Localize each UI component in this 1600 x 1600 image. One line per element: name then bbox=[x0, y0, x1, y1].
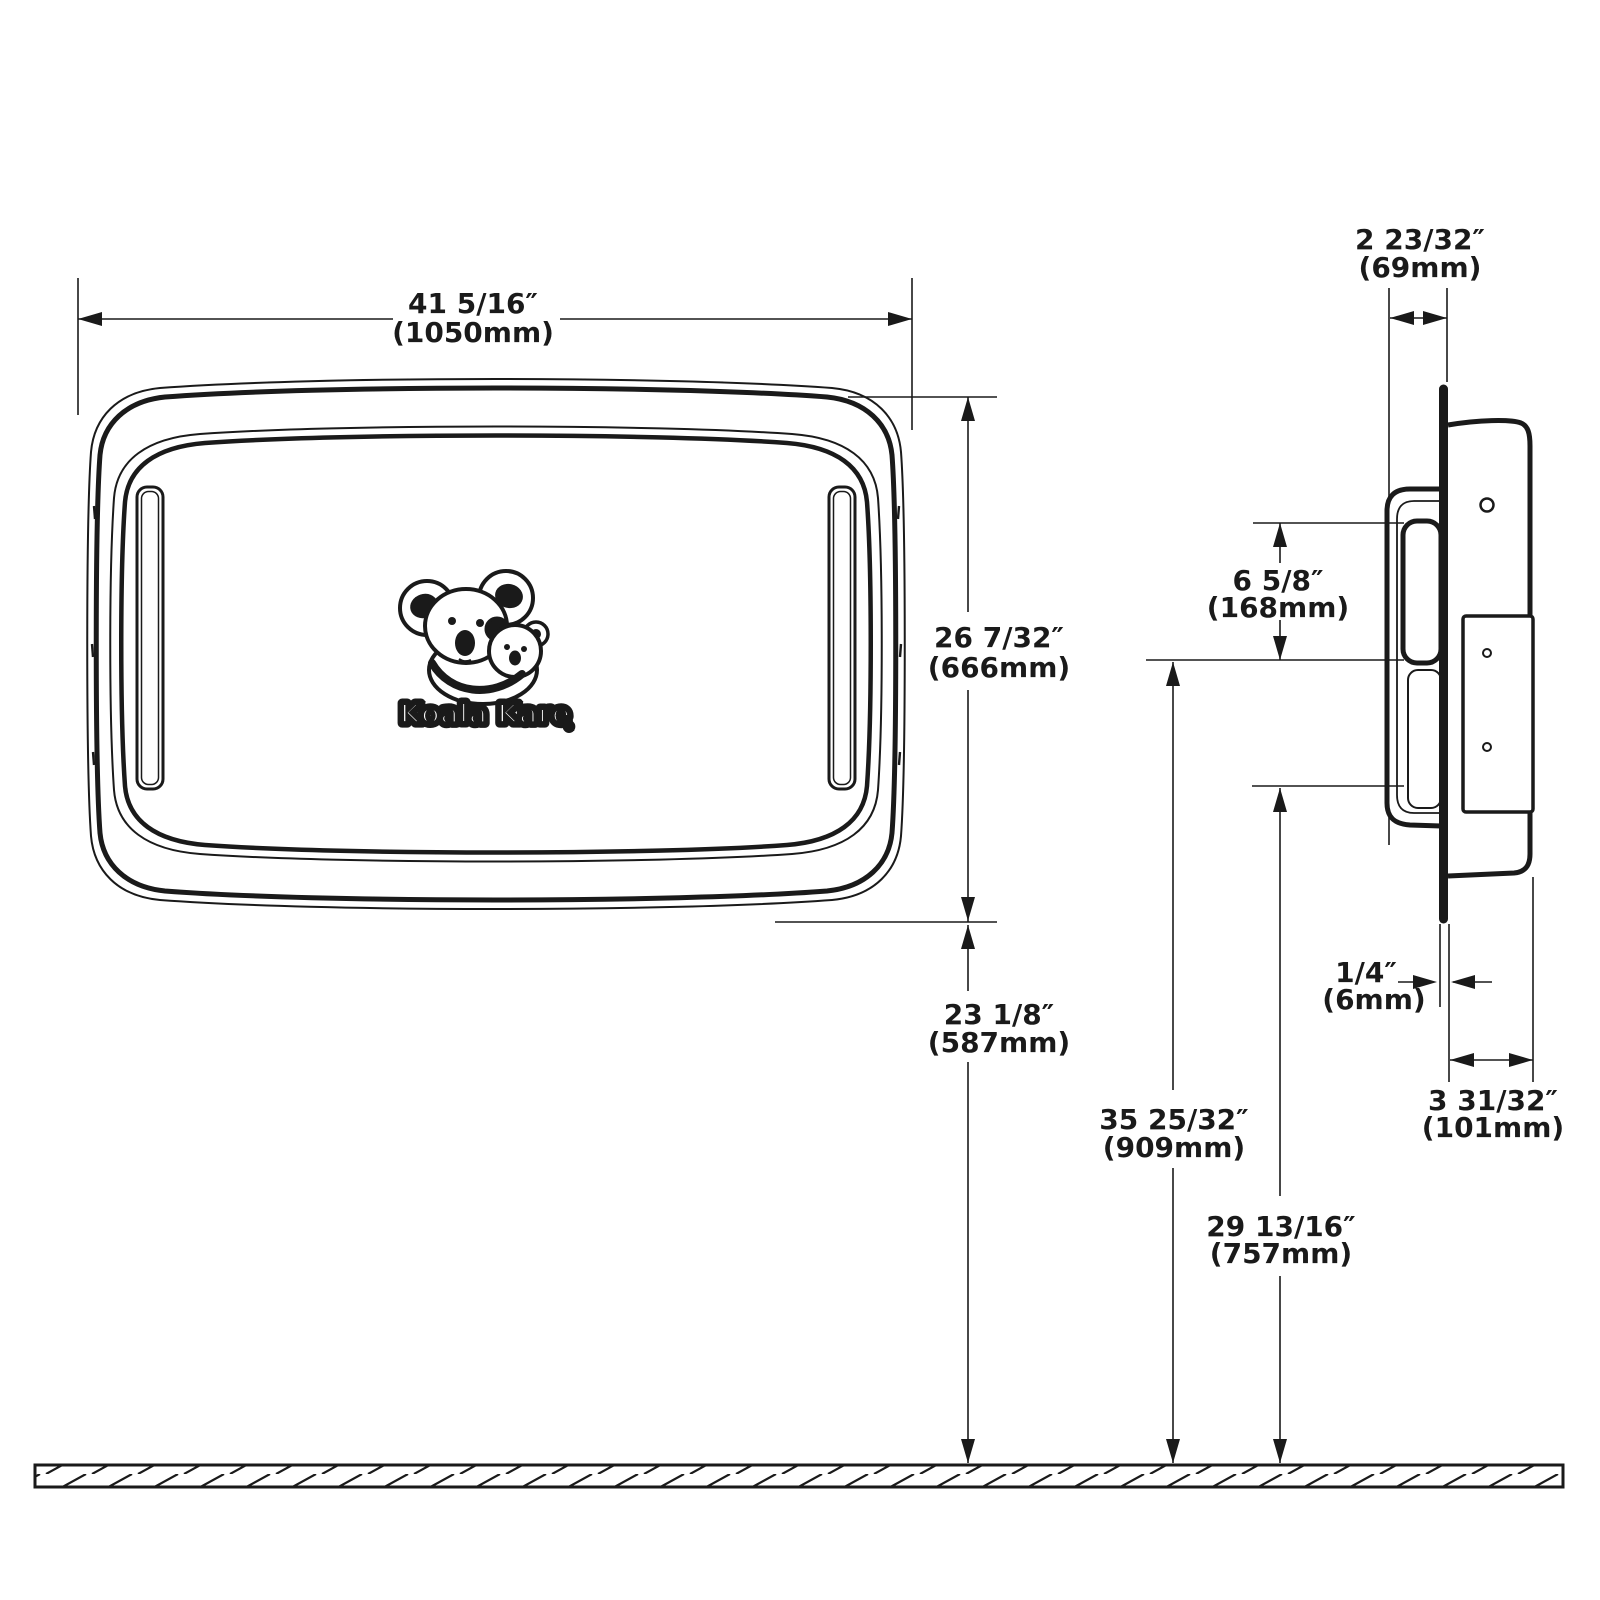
flange-projection-metric: (6mm) bbox=[1322, 983, 1425, 1016]
brand-wordmark: Koala Kare bbox=[400, 697, 571, 730]
body-projection-metric: (101mm) bbox=[1422, 1111, 1564, 1144]
dim-unit-height: 26 7/32″ (666mm) bbox=[775, 397, 1070, 922]
dim-flange-projection: 1/4″ (6mm) bbox=[1322, 956, 1492, 1016]
overall-width-metric: (1050mm) bbox=[392, 316, 554, 349]
dim-body-projection: 3 31/32″ (101mm) bbox=[1422, 1053, 1564, 1144]
dimension-drawing: Koala Kare Koala Kare ® bbox=[0, 0, 1600, 1600]
top-mount-height-metric: (909mm) bbox=[1103, 1131, 1245, 1164]
dim-recess-depth: 2 23/32″ (69mm) bbox=[1355, 223, 1485, 382]
registered-trademark: ® bbox=[563, 720, 575, 734]
dim-opening-height: 6 5/8″ (168mm) bbox=[1146, 523, 1404, 660]
floor-section bbox=[35, 1465, 1563, 1487]
recess-lower-section bbox=[1408, 670, 1441, 808]
unit-height-inches: 26 7/32″ bbox=[934, 621, 1064, 654]
right-strap-slot bbox=[829, 487, 855, 789]
backplate bbox=[1463, 616, 1533, 812]
dim-top-mount-height: 35 25/32″ (909mm) bbox=[1099, 662, 1248, 1463]
left-strap-slot bbox=[137, 487, 163, 789]
recess-depth-metric: (69mm) bbox=[1359, 251, 1482, 284]
folded-tray-section bbox=[1403, 521, 1441, 663]
side-view bbox=[1387, 288, 1533, 1082]
unit-height-metric: (666mm) bbox=[928, 651, 1070, 684]
opening-height-metric: (168mm) bbox=[1207, 591, 1349, 624]
dim-overall-width: 41 5/16″ (1050mm) bbox=[78, 278, 912, 430]
drawing-canvas: Koala Kare Koala Kare ® bbox=[0, 0, 1600, 1600]
koala-kare-logo: Koala Kare Koala Kare ® bbox=[400, 571, 575, 734]
front-view: Koala Kare Koala Kare ® bbox=[87, 379, 905, 909]
height-to-floor-metric: (587mm) bbox=[928, 1026, 1070, 1059]
bottom-mount-height-metric: (757mm) bbox=[1210, 1237, 1352, 1270]
dim-height-to-floor: 23 1/8″ (587mm) bbox=[928, 925, 1070, 1463]
